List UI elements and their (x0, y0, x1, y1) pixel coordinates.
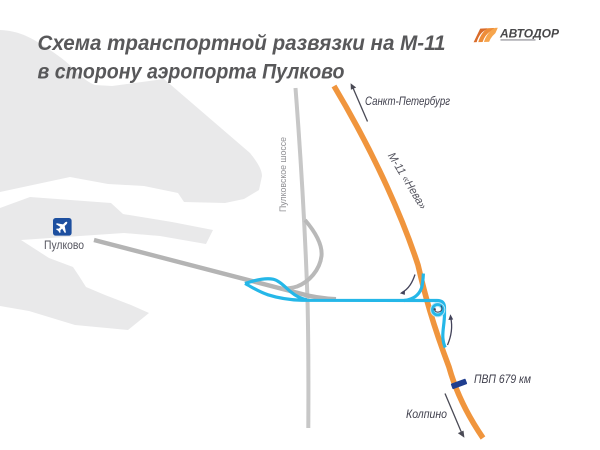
svg-text:Пулковское шоссе: Пулковское шоссе (278, 137, 289, 212)
svg-text:Схема транспортной развязки на: Схема транспортной развязки на М-11 (38, 31, 446, 55)
svg-text:ПВП 679 км: ПВП 679 км (474, 374, 531, 386)
svg-text:в сторону аэропорта Пулково: в сторону аэропорта Пулково (38, 60, 345, 84)
svg-text:Пулково: Пулково (44, 240, 84, 252)
svg-text:АВТОДОР: АВТОДОР (499, 27, 560, 41)
svg-text:Санкт-Петербург: Санкт-Петербург (365, 96, 450, 108)
svg-text:Колпино: Колпино (406, 409, 448, 421)
